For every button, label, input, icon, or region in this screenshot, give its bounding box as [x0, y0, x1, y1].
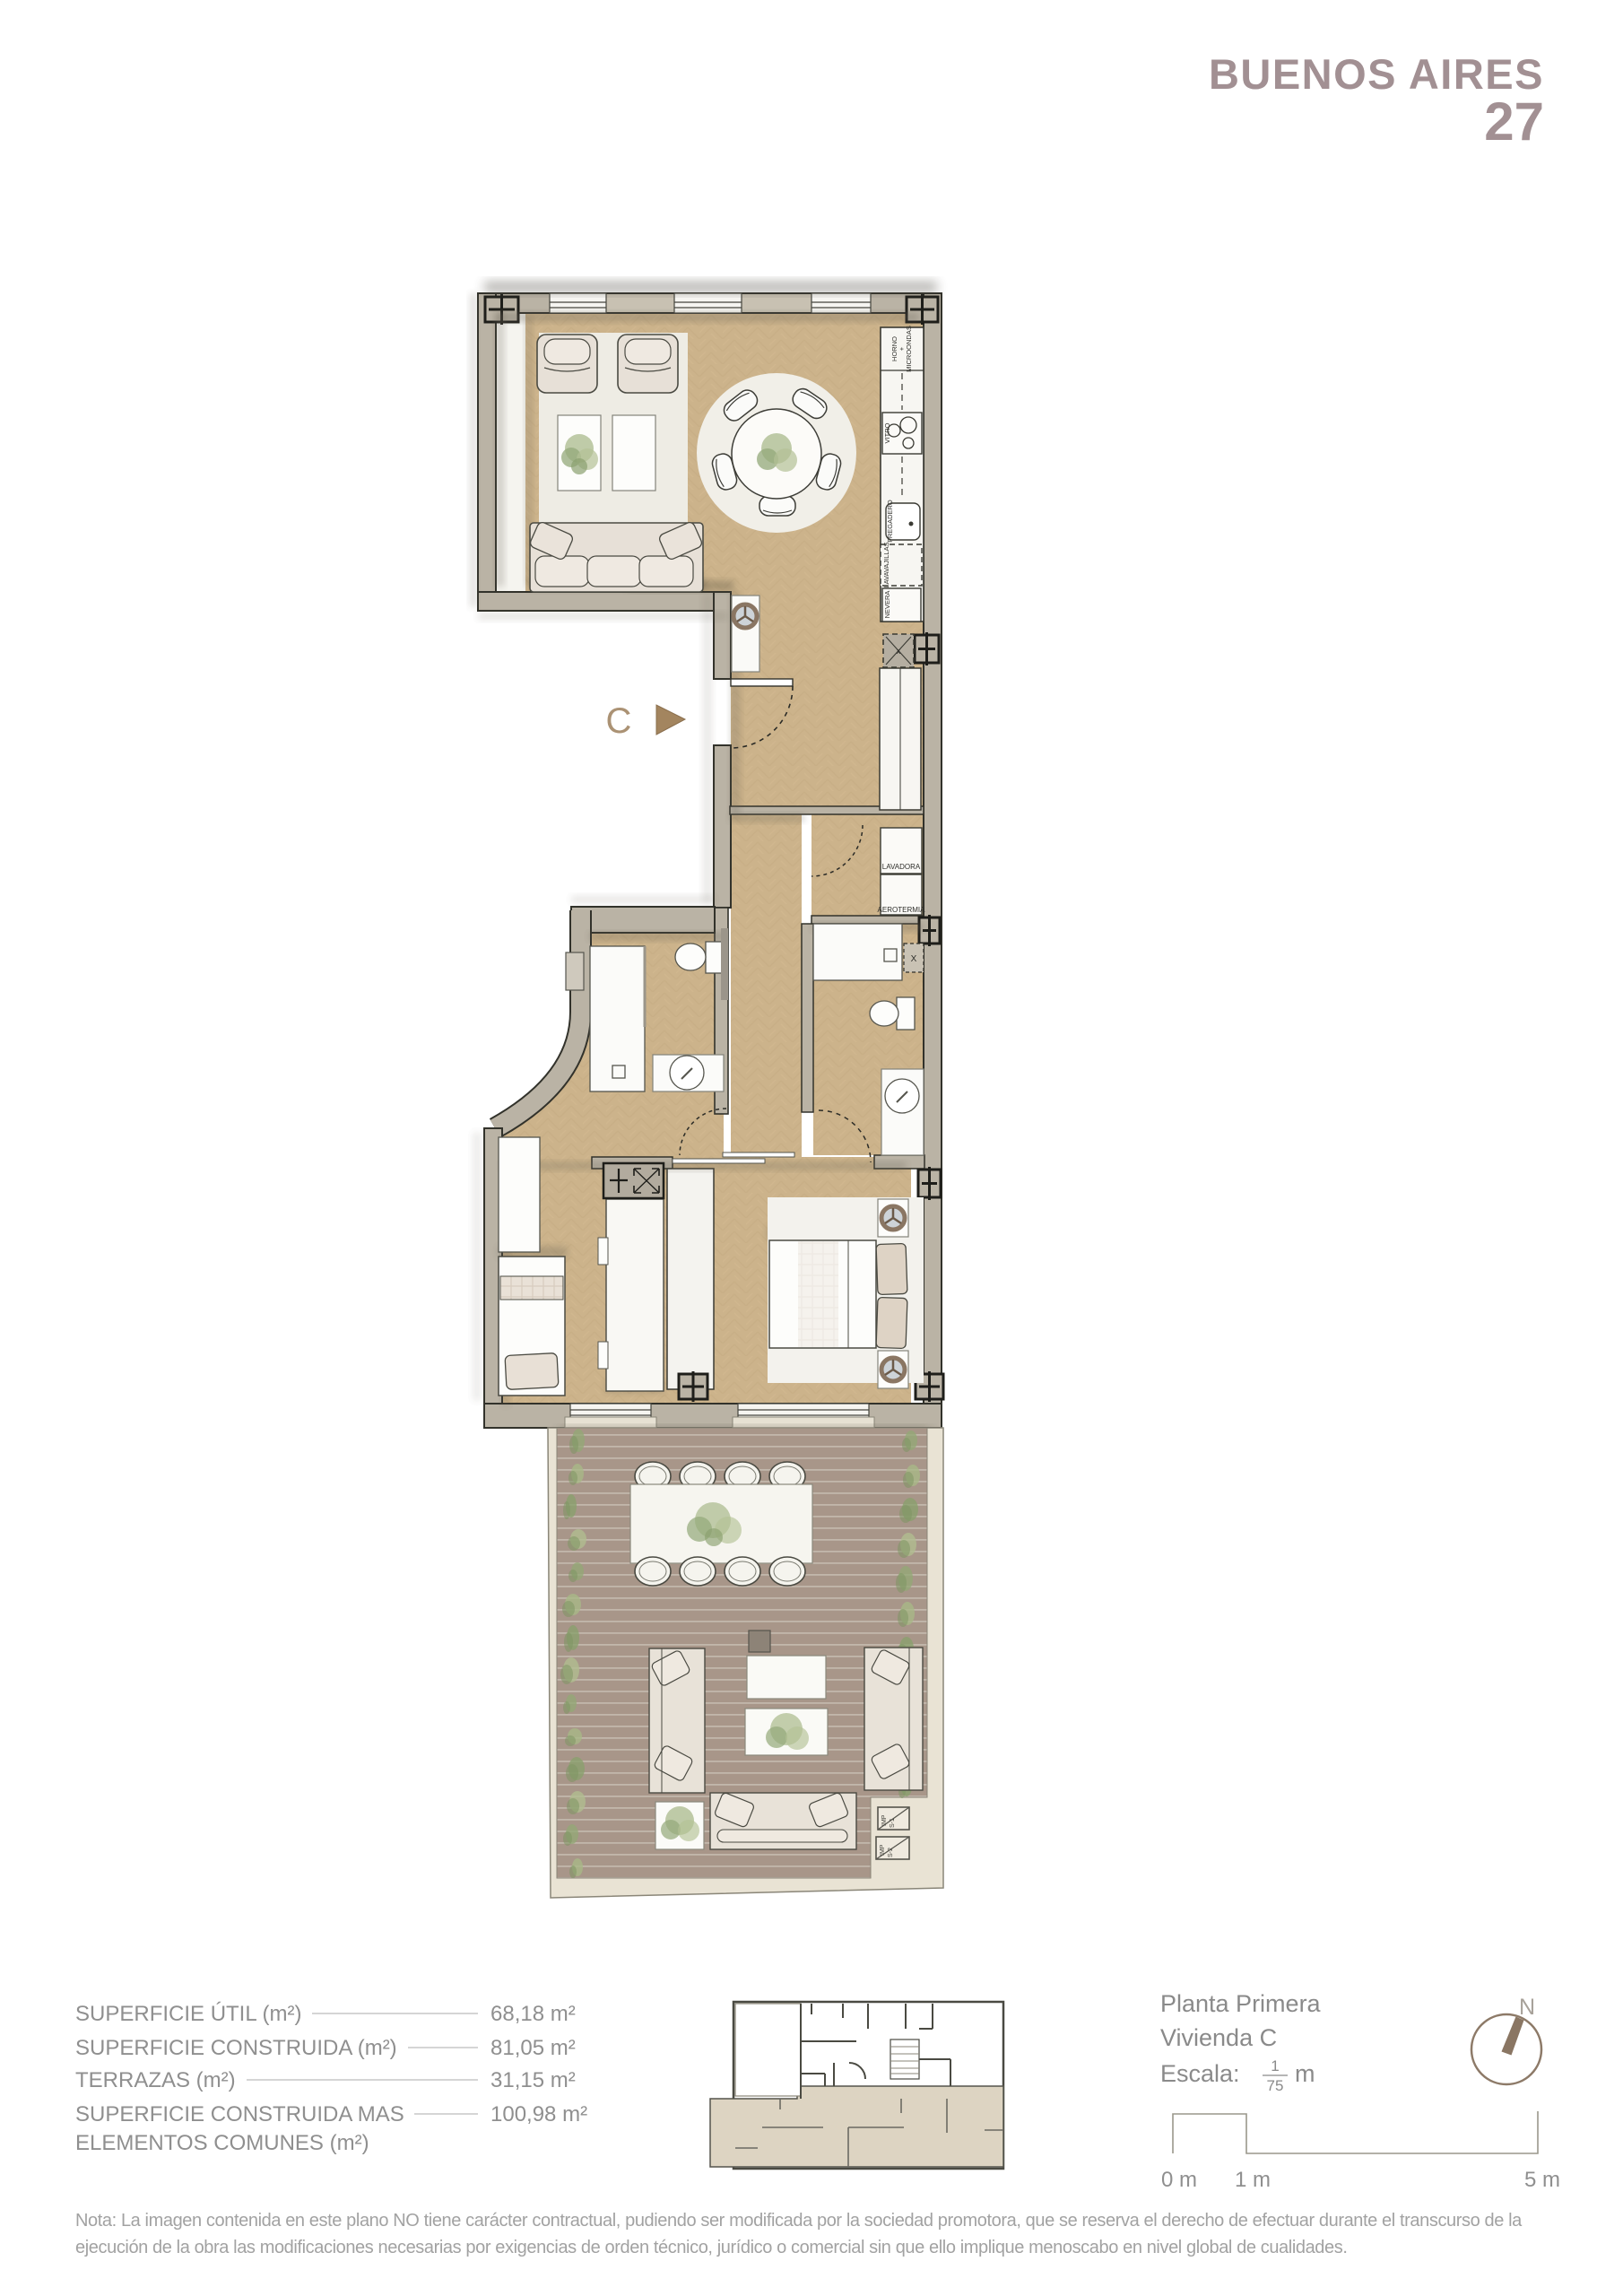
svg-text:NEVERA: NEVERA: [883, 591, 891, 619]
svg-text:5 m: 5 m: [1524, 2168, 1560, 2192]
svg-text:X: X: [911, 954, 917, 964]
svg-text:IMP: IMP: [880, 1844, 886, 1856]
svg-text:0 m: 0 m: [1161, 2168, 1197, 2192]
svg-text:Nota: La imagen contenida en e: Nota: La imagen contenida en este plano …: [75, 2211, 1523, 2231]
svg-text:75: 75: [1267, 2077, 1284, 2094]
svg-text:31,15 m²: 31,15 m²: [490, 2068, 576, 2092]
svg-text:SUPERFICIE CONSTRUIDA MAS: SUPERFICIE CONSTRUIDA MAS: [75, 2102, 404, 2126]
svg-text:Escala:: Escala:: [1160, 2060, 1240, 2087]
svg-text:81,05 m²: 81,05 m²: [490, 2036, 576, 2060]
svg-text:TERRAZAS (m²): TERRAZAS (m²): [75, 2068, 236, 2092]
svg-text:100,98 m²: 100,98 m²: [490, 2102, 587, 2126]
svg-text:1: 1: [1271, 2057, 1279, 2074]
svg-text:SUPERFICIE CONSTRUIDA (m²): SUPERFICIE CONSTRUIDA (m²): [75, 2036, 397, 2060]
svg-text:1 m: 1 m: [1235, 2168, 1271, 2192]
svg-text:FREGADERO: FREGADERO: [886, 500, 894, 543]
svg-text:VITRO: VITRO: [883, 422, 891, 443]
svg-text:m: m: [1295, 2060, 1315, 2087]
svg-text:AEROTERMIA: AEROTERMIA: [878, 906, 926, 914]
svg-text:S-2: S-2: [888, 1848, 894, 1857]
svg-text:ejecución de la obra las modif: ejecución de la obra las modificaciones …: [75, 2238, 1348, 2257]
svg-text:MICROONDAS: MICROONDAS: [905, 326, 913, 372]
svg-text:27: 27: [1484, 91, 1544, 152]
svg-text:Vivienda C: Vivienda C: [1160, 2024, 1277, 2051]
svg-text:ELEMENTOS COMUNES (m²): ELEMENTOS COMUNES (m²): [75, 2131, 369, 2155]
svg-text:68,18 m²: 68,18 m²: [490, 2002, 576, 2026]
svg-text:LAVADORA: LAVADORA: [882, 863, 921, 871]
svg-text:SUPERFICIE ÚTIL (m²): SUPERFICIE ÚTIL (m²): [75, 2002, 301, 2026]
svg-text:LAVAVAJILLAS: LAVAVAJILLAS: [882, 542, 890, 587]
svg-text:C: C: [606, 701, 632, 741]
svg-text:N: N: [1519, 1995, 1535, 2020]
svg-text:Planta Primera: Planta Primera: [1160, 1990, 1322, 2017]
svg-text:S-1: S-1: [890, 1818, 896, 1828]
svg-text:IMP: IMP: [881, 1814, 888, 1826]
svg-text:x: x: [897, 647, 901, 656]
